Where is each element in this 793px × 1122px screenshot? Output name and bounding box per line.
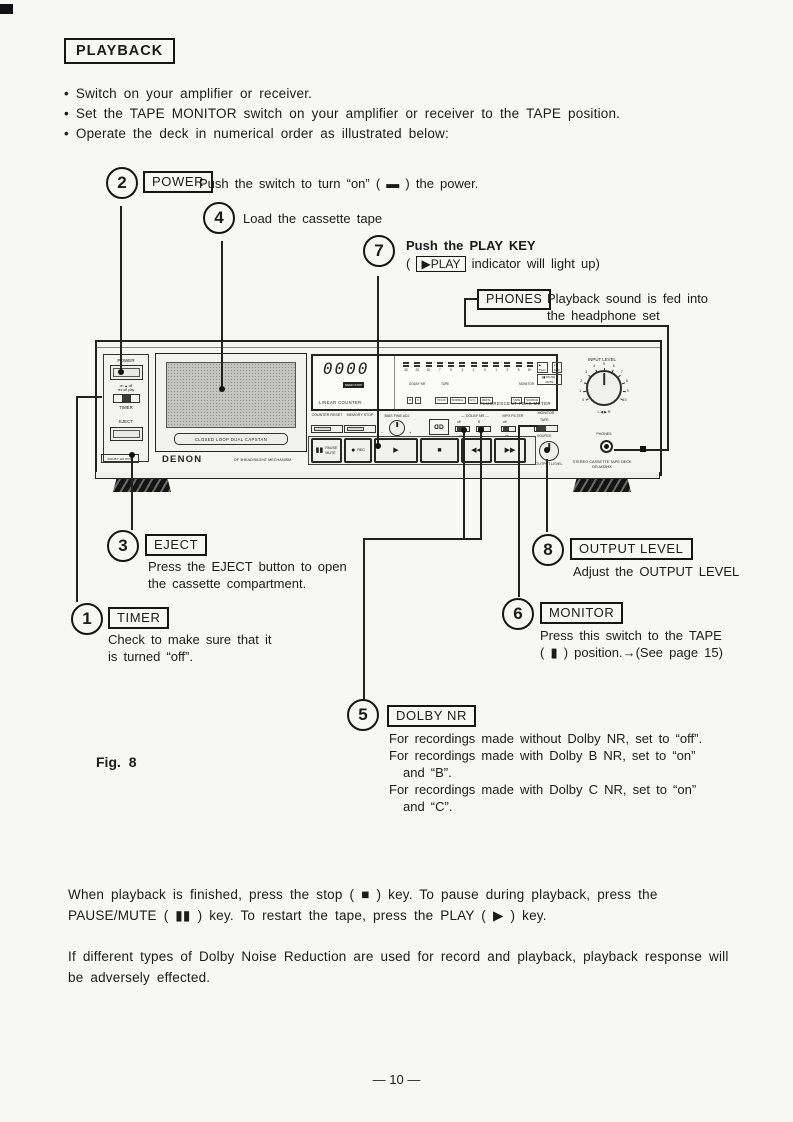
meter-segment xyxy=(527,365,533,367)
meter-scale-value: 3 xyxy=(461,368,463,372)
cassette-window xyxy=(166,362,296,428)
input-level-tick-mark xyxy=(584,382,587,384)
connector-phones-v2 xyxy=(667,325,669,451)
pause-mute-indicator: ▮▮ PAUSE / MUTE xyxy=(537,374,562,385)
memo-stop-badge: MEMO STOP xyxy=(343,382,364,388)
connector-8-dot xyxy=(544,447,550,453)
callout-3-number: 3 xyxy=(107,530,139,562)
tape-type-indicator: CrO₂ xyxy=(468,397,478,404)
play-callout-line: ( ▶PLAY indicator will light up) xyxy=(406,255,600,273)
meter-segment xyxy=(471,365,477,367)
callout-5-number: 5 xyxy=(347,699,379,731)
meter-scale-value: 0 xyxy=(484,368,486,372)
transport-key-label: REC xyxy=(357,448,365,452)
power-button xyxy=(110,365,143,380)
meter-scale-value: 20 xyxy=(415,368,419,372)
meter-segment xyxy=(482,365,488,367)
connector-6-monitor xyxy=(518,425,520,597)
meter-scale-value: 1 xyxy=(495,368,497,372)
pause-mute-key: ▮▮PAUSE MUTE xyxy=(311,438,342,463)
phones-jack xyxy=(600,440,613,453)
callout-6-number: 6 xyxy=(502,598,534,630)
callout-1-number: 1 xyxy=(71,603,103,635)
callout-4-number: 4 xyxy=(203,202,235,234)
eject-label: EJECT xyxy=(104,419,148,424)
input-level-tick-mark xyxy=(623,391,626,392)
connector-7-dot xyxy=(375,443,381,449)
connector-phones-h xyxy=(464,325,669,327)
monitor-switch-label: MONITOR xyxy=(532,411,560,415)
dolby-type-indicator: C xyxy=(415,397,421,404)
timer-label: TIMER xyxy=(104,405,148,410)
meter-segment xyxy=(471,362,477,364)
display-panel: 0000 MEMO STOP LINEAR COUNTER 3020107531… xyxy=(311,354,558,411)
input-level-tick-value: 6 xyxy=(613,364,615,368)
input-level-tick-value: 4 xyxy=(593,364,595,368)
meter-scale-value: 7 xyxy=(439,368,441,372)
input-level-tick-value: 2 xyxy=(580,379,582,383)
meter-step: 30 xyxy=(403,362,409,372)
monitor-tape-label: TAPE xyxy=(540,418,549,422)
callout-8-number: 8 xyxy=(532,534,564,566)
switch-top-label: off xyxy=(503,420,507,424)
deck-foot-right xyxy=(573,479,631,492)
meter-step: 7 xyxy=(437,362,443,372)
meter-segment xyxy=(414,362,420,364)
dolby-nr-switch-header: — DOLBY NR — xyxy=(453,414,497,418)
connector-1-stub xyxy=(77,396,102,398)
mpx-filter-switch xyxy=(501,426,516,432)
brand-logo: DENON xyxy=(162,454,202,465)
rec-indicator: ● REC xyxy=(552,362,562,373)
connector-4-door xyxy=(221,241,223,389)
dolby-type-indicator: B xyxy=(407,397,413,404)
eject-callout-label: EJECT xyxy=(145,534,207,556)
counter-reset-button xyxy=(311,425,343,433)
input-level-tick-mark xyxy=(618,375,621,378)
transport-key-label: PAUSE MUTE xyxy=(325,446,337,454)
callout-2-number: 2 xyxy=(106,167,138,199)
meter-segment xyxy=(448,362,454,364)
connector-1-timer xyxy=(76,396,78,602)
meter-step: 1 xyxy=(471,362,477,372)
output-level-callout-text: Adjust the OUTPUT LEVEL xyxy=(573,563,739,580)
tape-ind-label: TAPE xyxy=(441,382,449,386)
figure-label: Fig. 8 xyxy=(96,754,137,770)
meter-segment xyxy=(437,365,443,367)
mechanism-label: DF 3HEAD/SILENT MECHANISM xyxy=(234,458,291,462)
scan-artifact xyxy=(0,4,13,14)
transport-indicators: ▶ PLAY ● REC ▮▮ PAUSE / MUTE xyxy=(537,362,564,385)
bias-minus: − xyxy=(381,430,383,435)
meter-step: 3 xyxy=(504,362,510,372)
connector-4-dot xyxy=(219,386,225,392)
fluorescent-label: FLUORESCENT PEAK METER xyxy=(480,401,551,406)
input-level-scale: 012345678910 xyxy=(576,360,632,416)
bullet-line: • Operate the deck in numerical order as… xyxy=(64,124,744,144)
footer-paragraph-1: When playback is finished, press the sto… xyxy=(68,884,732,926)
rewind-key: ◀◀ xyxy=(461,438,492,463)
meter-segment xyxy=(426,365,432,367)
input-level-tick-mark xyxy=(588,375,591,378)
meter-segment xyxy=(414,365,420,367)
input-level-tick-mark xyxy=(620,398,623,400)
input-level-tick-mark xyxy=(595,370,597,373)
connector-8-output xyxy=(546,459,548,532)
timer-markings: on ▲ off rec off play xyxy=(104,384,148,392)
connector-phones-v1 xyxy=(464,298,466,326)
play-key-icon: ▶ xyxy=(393,447,398,454)
dolby-callout-label: DOLBY NR xyxy=(387,705,476,727)
meter-segment xyxy=(493,362,499,364)
timer-callout-label: TIMER xyxy=(108,607,169,629)
deck-bottom-lip xyxy=(95,472,660,479)
connector-5-v3 xyxy=(363,538,365,699)
connector-5-dot2 xyxy=(478,427,484,433)
meter-segment xyxy=(459,365,465,367)
power-callout-text: Push the switch to turn “on” ( ▬ ) the p… xyxy=(199,175,478,192)
meter-step: 20 xyxy=(414,362,420,372)
manual-page: PLAYBACK • Switch on your amplifier or r… xyxy=(0,0,793,1122)
model-name: STEREO CASSETTE TAPE DECK DR-M33HX xyxy=(552,460,652,469)
pause-mute-key-icon: ▮▮ xyxy=(316,447,324,454)
connector-5-h xyxy=(363,538,482,540)
eject-callout-text: Press the EJECT button to open the casse… xyxy=(148,558,347,592)
meter-segment xyxy=(448,365,454,367)
meter-step: 0 xyxy=(482,362,488,372)
left-control-panel: POWER on ▲ off rec off play TIMER EJECT xyxy=(103,354,149,462)
connector-3-dot xyxy=(129,452,135,458)
meter-step: 5 xyxy=(516,362,522,372)
meter-scale-value: 1 xyxy=(473,368,475,372)
connector-phones-stub xyxy=(464,298,478,300)
dolby-nr-ind-label: DOLBY NR xyxy=(409,382,425,386)
page-number: — 10 — xyxy=(0,1072,793,1087)
dolby-nr-ind-boxes: BC xyxy=(407,388,423,406)
meter-segment xyxy=(493,365,499,367)
meter-segment xyxy=(482,362,488,364)
meter-segment xyxy=(426,362,432,364)
input-level-tick-mark xyxy=(622,382,625,384)
meter-step: 1 xyxy=(493,362,499,372)
mpx-filter-header: MPX FILTER xyxy=(499,414,527,418)
bias-plus: + xyxy=(409,430,411,435)
tape-type-indicator: 70/120 xyxy=(435,397,448,404)
meter-scale-value: 5 xyxy=(450,368,452,372)
input-level-tick-value: 3 xyxy=(585,370,587,374)
phones-callout-label: PHONES xyxy=(477,289,551,310)
dolby-hx-logo: DD xyxy=(429,419,449,435)
meter-step: 5 xyxy=(448,362,454,372)
fast-forward-key: ▶▶ xyxy=(494,438,526,463)
connector-2-dot xyxy=(118,369,124,375)
switch-handle xyxy=(503,427,509,431)
input-level-tick-mark xyxy=(586,398,589,400)
meter-scale-value: 8+ xyxy=(528,368,532,372)
input-level-tick-value: 7 xyxy=(621,370,623,374)
meter-step: 3 xyxy=(459,362,465,372)
capstan-badge: CLOSED LOOP DUAL CAPSTAN xyxy=(174,433,288,445)
stop-key: ■ xyxy=(420,438,459,463)
meter-segment xyxy=(527,362,533,364)
phones-label: PHONES xyxy=(592,432,616,436)
connector-2-power xyxy=(120,206,122,372)
power-label: POWER xyxy=(104,358,148,363)
cassette-door: CLOSED LOOP DUAL CAPSTAN xyxy=(155,353,307,452)
page-title: PLAYBACK xyxy=(64,38,175,64)
peak-meter-scale: 302010753101358+ xyxy=(403,362,533,372)
connector-3-eject xyxy=(131,455,133,530)
connector-5-v2 xyxy=(480,429,482,540)
bias-fine-adj-label: BIAS FINE ADJ xyxy=(375,414,419,418)
dolby-callout-text: For recordings made without Dolby NR, se… xyxy=(389,730,702,815)
input-level-tick-value: 0 xyxy=(582,398,584,402)
meter-step: 10 xyxy=(426,362,432,372)
output-level-callout-label: OUTPUT LEVEL xyxy=(570,538,693,560)
transport-keys: ▮▮PAUSE MUTE●REC▶■◀◀▶▶ xyxy=(308,436,536,465)
counter-section: 0000 MEMO STOP LINEAR COUNTER xyxy=(313,356,395,409)
meter-segment xyxy=(403,365,409,367)
intro-bullets: • Switch on your amplifier or receiver. … xyxy=(64,84,744,144)
bias-fine-adj-knob xyxy=(389,420,405,436)
play-callout-title: Push the PLAY KEY xyxy=(406,237,536,254)
meter-scale-value: 3 xyxy=(507,368,509,372)
deck-foot-left xyxy=(113,479,171,492)
play-indicator-box: ▶PLAY xyxy=(416,256,465,272)
bullet-line: • Set the TAPE MONITOR switch on your am… xyxy=(64,104,744,124)
meter-scale-value: 30 xyxy=(404,368,408,372)
timer-switch xyxy=(113,394,140,403)
phones-callout-text: Playback sound is fed into the headphone… xyxy=(547,290,708,324)
input-level-tick-value: 9 xyxy=(627,389,629,393)
linear-counter-label: LINEAR COUNTER xyxy=(319,400,362,405)
input-level-tick-value: 10 xyxy=(623,398,627,402)
connector-6-stub xyxy=(518,425,538,427)
monitor-callout-text: Press this switch to the TAPE ( ▮ ) posi… xyxy=(540,627,723,661)
meter-segment xyxy=(516,362,522,364)
counter-reset-label: COUNTER RESET xyxy=(311,413,343,417)
input-level-tick-value: 5 xyxy=(603,362,605,366)
monitor-source-label: SOURCE xyxy=(537,434,552,438)
input-level-tick-value: 1 xyxy=(579,389,581,393)
monitor-callout-label: MONITOR xyxy=(540,602,623,624)
input-level-tick-mark xyxy=(604,368,605,371)
input-level-tick-mark xyxy=(612,370,614,373)
timer-callout-text: Check to make sure that it is turned “of… xyxy=(108,631,272,665)
tape-counter: 0000 xyxy=(323,359,370,378)
meter-step: 8+ xyxy=(527,362,533,372)
switch-top-label: B xyxy=(478,420,480,424)
meter-segment xyxy=(516,365,522,367)
play-key: ▶ xyxy=(374,438,418,463)
input-level-tick-value: 8 xyxy=(626,379,628,383)
connector-7-play xyxy=(377,276,379,446)
connector-5-dot1 xyxy=(461,427,467,433)
meter-segment xyxy=(504,362,510,364)
monitor-ind-label: MONITOR xyxy=(519,382,534,386)
connector-phones-node xyxy=(640,446,646,452)
eject-button xyxy=(110,427,143,441)
meter-segment xyxy=(403,362,409,364)
connector-5-v1 xyxy=(463,429,465,540)
play-indicator: ▶ PLAY xyxy=(537,362,548,373)
callout-7-number: 7 xyxy=(363,235,395,267)
meter-scale-value: 5 xyxy=(518,368,520,372)
bullet-line: • Switch on your amplifier or receiver. xyxy=(64,84,744,104)
memory-stop-button xyxy=(344,425,376,433)
meter-segment xyxy=(504,365,510,367)
rec-key: ●REC xyxy=(344,438,372,463)
tape-type-indicator: NORMAL xyxy=(450,397,466,404)
meter-scale-value: 10 xyxy=(427,368,431,372)
load-callout-text: Load the cassette tape xyxy=(243,210,382,227)
fast-forward-key-icon: ▶▶ xyxy=(505,447,516,454)
meter-segment xyxy=(459,362,465,364)
stop-key-icon: ■ xyxy=(437,447,441,454)
meter-segment xyxy=(437,362,443,364)
input-level-tick-mark xyxy=(583,391,586,392)
rec-key-icon: ● xyxy=(351,447,355,454)
balance-marks: L ◀ ▶ R xyxy=(588,410,620,414)
memory-stop-label: MEMORY STOP xyxy=(344,413,376,417)
switch-top-label: off xyxy=(457,420,461,424)
footer-paragraph-2: If different types of Dolby Noise Reduct… xyxy=(68,946,732,988)
